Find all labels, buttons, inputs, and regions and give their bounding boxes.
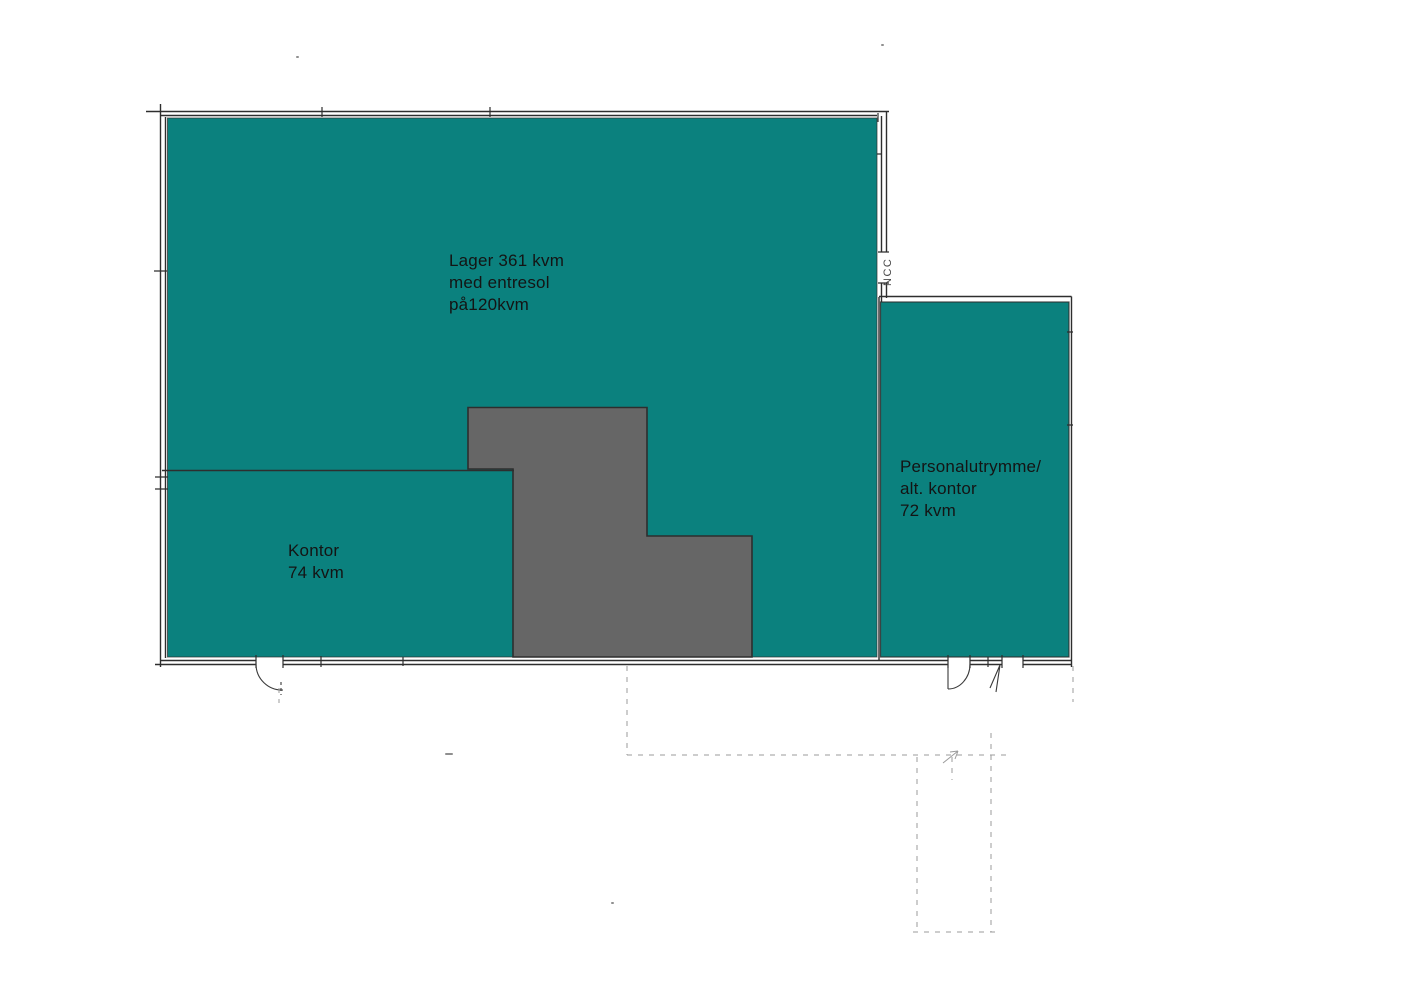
door-swings: [256, 664, 1000, 695]
label-personalutrymme: Personalutrymme/ alt. kontor 72 kvm: [900, 456, 1041, 522]
label-lager-line-1: Lager 361 kvm: [449, 250, 564, 272]
floorplan-linework: NCC: [0, 0, 1403, 992]
label-lager: Lager 361 kvm med entresol på120kvm: [449, 250, 564, 316]
label-kontor-line-1: Kontor: [288, 540, 344, 562]
label-kontor-line-2: 74 kvm: [288, 562, 344, 584]
builder-stamp: NCC: [882, 258, 894, 286]
label-personalutrymme-line-2: alt. kontor: [900, 478, 1041, 500]
label-personalutrymme-line-1: Personalutrymme/: [900, 456, 1041, 478]
label-lager-line-3: på120kvm: [449, 294, 564, 316]
label-kontor: Kontor 74 kvm: [288, 540, 344, 584]
label-personalutrymme-line-3: 72 kvm: [900, 500, 1041, 522]
faint-guide-lines: [279, 666, 1073, 932]
floorplan-canvas: NCC Lager 361 kvm med entresol på120kvm …: [0, 0, 1403, 992]
label-lager-line-2: med entresol: [449, 272, 564, 294]
guide-arrow: [943, 751, 958, 763]
